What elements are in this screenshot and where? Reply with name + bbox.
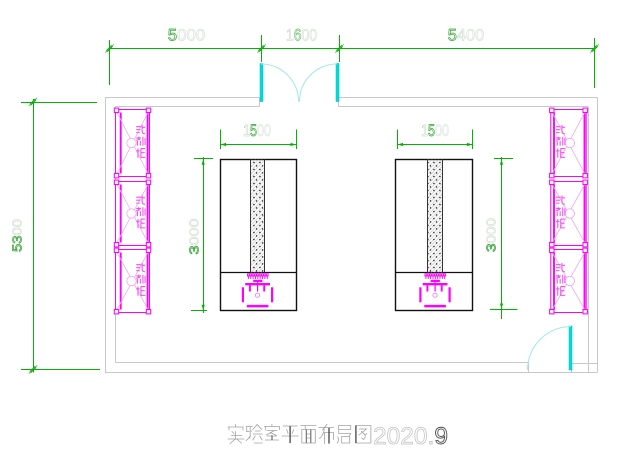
svg-text:1500: 1500 xyxy=(243,121,271,140)
svg-text:1600: 1600 xyxy=(286,25,317,44)
svg-text:5400: 5400 xyxy=(448,25,485,44)
svg-text:5300: 5300 xyxy=(10,219,25,252)
svg-text:5000: 5000 xyxy=(168,25,206,44)
svg-text:3000: 3000 xyxy=(187,219,202,255)
svg-text:2020.9: 2020.9 xyxy=(373,423,448,450)
svg-text:3000: 3000 xyxy=(484,218,499,252)
svg-text:1500: 1500 xyxy=(421,121,449,140)
